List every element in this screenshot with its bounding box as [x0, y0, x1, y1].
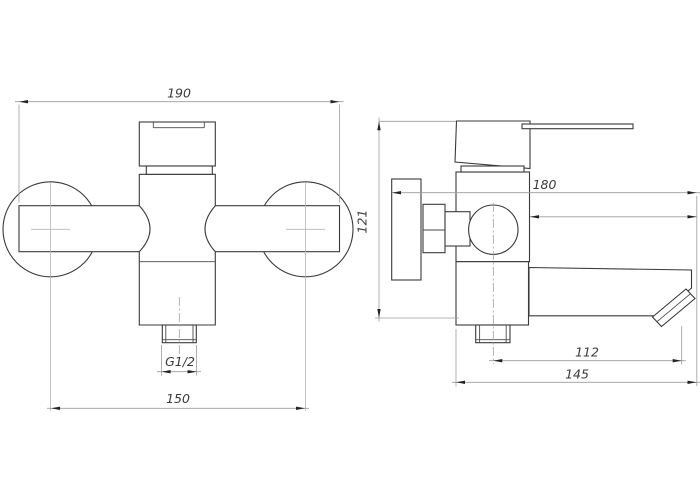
thread-nipple-side: [476, 325, 510, 343]
arrow-right-icon: [688, 191, 697, 194]
dim-145-label: 145: [565, 367, 589, 382]
arrow-left-icon: [493, 359, 502, 362]
arrow-left-icon: [456, 381, 465, 384]
dimension-total-depth: 180: [392, 177, 700, 194]
cartridge-ring-front: [146, 166, 212, 174]
handle-cap-side: [455, 121, 530, 169]
eccentric-connector: [423, 204, 445, 252]
arrow-left-icon: [51, 407, 60, 410]
arrow-right-icon: [688, 381, 697, 384]
arrow-right-icon: [688, 215, 697, 218]
handle-cap-front: [139, 122, 215, 166]
dim-180-label: 180: [533, 177, 557, 192]
dim-g12-label: G1/2: [165, 354, 195, 369]
arrow-right-icon: [188, 370, 197, 373]
arrow-left-icon: [19, 100, 28, 103]
arrow-right-icon: [331, 100, 340, 103]
arrow-down-icon: [377, 309, 380, 318]
front-view: 190 150 G1/2: [3, 86, 353, 412]
arrow-left-icon: [162, 370, 171, 373]
mixer-body-lower-side: [456, 262, 529, 325]
dimension-line-secondary: [530, 215, 697, 218]
connector-pipe: [445, 212, 470, 246]
cartridge-ring-side: [461, 166, 524, 172]
lever-handle-side: [522, 124, 633, 129]
arrow-up-icon: [377, 121, 380, 130]
arrow-right-icon: [673, 359, 682, 362]
dim-121-label: 121: [355, 210, 370, 234]
dim-150-label: 150: [166, 391, 190, 406]
side-view: 121 180 112: [355, 118, 700, 387]
technical-drawing-canvas: 190 150 G1/2: [0, 0, 700, 500]
dim-112-label: 112: [575, 345, 599, 360]
dim-190-label: 190: [167, 86, 191, 101]
mixer-body-front: [139, 174, 215, 325]
arrow-right-icon: [296, 407, 305, 410]
dimension-inlet-centers: 150: [47, 391, 309, 410]
technical-drawing-page: 190 150 G1/2: [0, 0, 700, 500]
arrow-left-icon: [530, 215, 539, 218]
dimension-spout-reach: 112: [489, 326, 686, 365]
wall-flange-side: [392, 179, 421, 280]
